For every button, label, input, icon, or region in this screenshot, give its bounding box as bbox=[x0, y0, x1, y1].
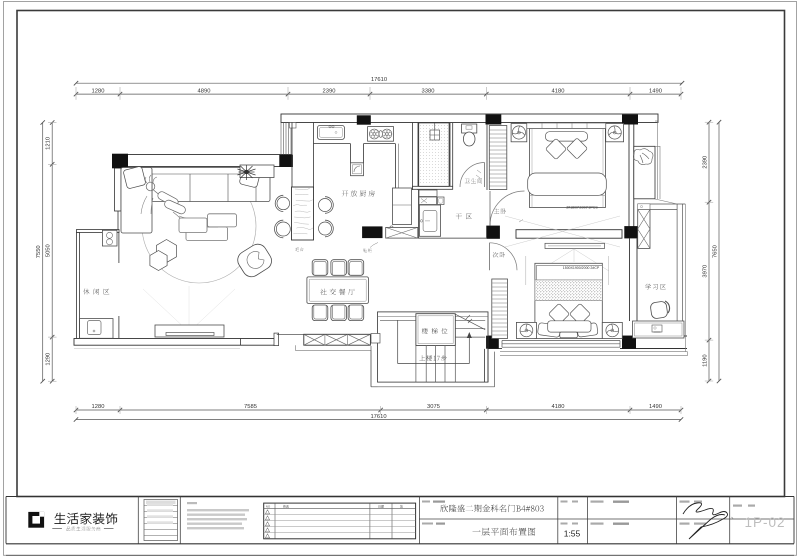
svg-text:签: 签 bbox=[400, 503, 403, 508]
svg-text:1210: 1210 bbox=[46, 137, 52, 150]
svg-text:3380: 3380 bbox=[422, 88, 435, 94]
svg-text:日期: 日期 bbox=[378, 503, 384, 508]
svg-text:4180: 4180 bbox=[552, 404, 565, 410]
svg-text:3075: 3075 bbox=[427, 404, 440, 410]
svg-text:17610: 17610 bbox=[370, 414, 386, 420]
svg-text:修改: 修改 bbox=[283, 503, 289, 508]
svg-text:2390: 2390 bbox=[323, 88, 336, 94]
svg-text:1280: 1280 bbox=[92, 88, 105, 94]
svg-text:7585: 7585 bbox=[244, 404, 257, 410]
svg-text:5050: 5050 bbox=[46, 244, 52, 257]
svg-text:2#1800*2000*3PCS: 2#1800*2000*3PCS bbox=[566, 206, 598, 210]
svg-text:1:55: 1:55 bbox=[564, 529, 581, 539]
svg-text:3970: 3970 bbox=[702, 265, 708, 278]
svg-text:1490: 1490 bbox=[649, 88, 662, 94]
svg-text:2390: 2390 bbox=[702, 156, 708, 169]
svg-text:1190: 1190 bbox=[702, 354, 708, 366]
svg-text:NO: NO bbox=[266, 504, 271, 508]
svg-text:7650: 7650 bbox=[712, 245, 718, 258]
svg-text:1P-02: 1P-02 bbox=[744, 515, 785, 530]
svg-text:1290: 1290 bbox=[46, 353, 52, 366]
svg-text:4890: 4890 bbox=[198, 88, 211, 94]
svg-text:17610: 17610 bbox=[371, 77, 387, 83]
svg-text:7550: 7550 bbox=[36, 245, 42, 258]
svg-text:1490: 1490 bbox=[649, 404, 662, 410]
svg-text:1500X1900/2000 2#CP: 1500X1900/2000 2#CP bbox=[563, 266, 600, 270]
svg-text:4180: 4180 bbox=[552, 88, 565, 94]
svg-text:1280: 1280 bbox=[92, 404, 105, 410]
